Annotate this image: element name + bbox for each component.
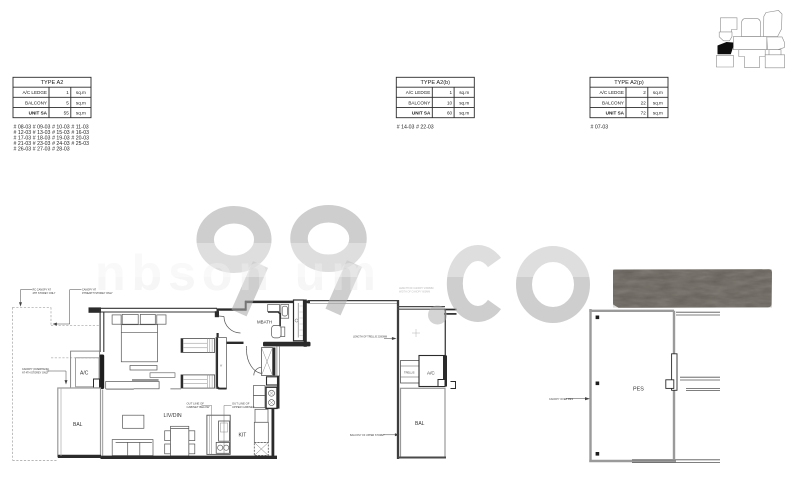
svg-text:# 27-03: # 27-03 <box>33 146 51 152</box>
svg-text:LENGTH OF TRELLIS 2300MM: LENGTH OF TRELLIS 2300MM <box>353 336 387 339</box>
svg-text:60: 60 <box>447 110 453 115</box>
svg-text:TYPE A2(b): TYPE A2(b) <box>421 80 451 86</box>
svg-text:72: 72 <box>641 110 647 115</box>
svg-text:WIDTH OF CANOPY 600MM: WIDTH OF CANOPY 600MM <box>399 290 430 293</box>
svg-text:KIT: KIT <box>239 433 247 439</box>
svg-text:TRELLIS: TRELLIS <box>404 371 415 375</box>
svg-text:CABINET BELOW: CABINET BELOW <box>187 405 210 409</box>
svg-text:# 28-03: # 28-03 <box>52 146 70 152</box>
svg-text:1: 1 <box>450 90 453 95</box>
svg-text:4TH STOREY ONLY: 4TH STOREY ONLY <box>33 292 56 295</box>
svg-text:# 07-03: # 07-03 <box>591 124 609 130</box>
svg-text:PES: PES <box>633 387 644 393</box>
svg-text:A/C: A/C <box>80 371 89 377</box>
svg-text:CANOPY OVER PES: CANOPY OVER PES <box>549 398 573 401</box>
svg-text:A/C: A/C <box>427 370 435 375</box>
svg-text:BALCONY: BALCONY <box>408 100 430 105</box>
svg-text:TYPE A2(p): TYPE A2(p) <box>614 80 644 86</box>
svg-text:BALCONY: BALCONY <box>25 100 47 105</box>
svg-text:BAL: BAL <box>415 421 425 427</box>
svg-text:LIV/DIN: LIV/DIN <box>164 413 182 419</box>
svg-text:UNIT SA: UNIT SA <box>606 110 625 115</box>
svg-text:sq.m: sq.m <box>76 110 86 115</box>
svg-text:22: 22 <box>641 100 647 105</box>
svg-text:A/C LEDGE: A/C LEDGE <box>599 90 624 95</box>
svg-text:BALCONY OF UPPER STOREY: BALCONY OF UPPER STOREY <box>350 434 385 437</box>
svg-text:2: 2 <box>643 90 646 95</box>
svg-text:A/C LEDGE: A/C LEDGE <box>22 90 47 95</box>
svg-text:UNIT SA: UNIT SA <box>412 110 431 115</box>
svg-text:nbson um: nbson um <box>95 245 382 301</box>
svg-text:UNIT SA: UNIT SA <box>29 110 48 115</box>
svg-text:UPPER CABINET: UPPER CABINET <box>232 405 255 409</box>
svg-text:sq.m: sq.m <box>653 90 663 95</box>
svg-text:TYPE A2: TYPE A2 <box>41 80 64 86</box>
svg-text:sq.m: sq.m <box>76 90 86 95</box>
svg-text:AT 4TH STOREY ONLY: AT 4TH STOREY ONLY <box>22 372 49 375</box>
svg-text:MBATH: MBATH <box>257 320 272 325</box>
svg-text:A/C LEDGE: A/C LEDGE <box>406 90 431 95</box>
svg-text:sq.m: sq.m <box>459 110 469 115</box>
svg-text:BALCONY: BALCONY <box>602 100 624 105</box>
svg-text:sq.m: sq.m <box>76 100 86 105</box>
svg-text:# 26-03: # 26-03 <box>14 146 32 152</box>
svg-text:# 22-03: # 22-03 <box>416 124 434 130</box>
svg-text:sq.m: sq.m <box>459 90 469 95</box>
svg-text:# 14-03: # 14-03 <box>397 124 415 130</box>
svg-text:sq.m: sq.m <box>653 100 663 105</box>
svg-text:BAL: BAL <box>73 422 83 428</box>
svg-text:5: 5 <box>66 100 69 105</box>
svg-text:10: 10 <box>447 100 453 105</box>
svg-text:sq.m: sq.m <box>459 100 469 105</box>
svg-text:1: 1 <box>66 90 69 95</box>
svg-text:sq.m: sq.m <box>653 110 663 115</box>
svg-text:# 25-03: # 25-03 <box>71 141 89 147</box>
svg-text:55: 55 <box>64 110 70 115</box>
